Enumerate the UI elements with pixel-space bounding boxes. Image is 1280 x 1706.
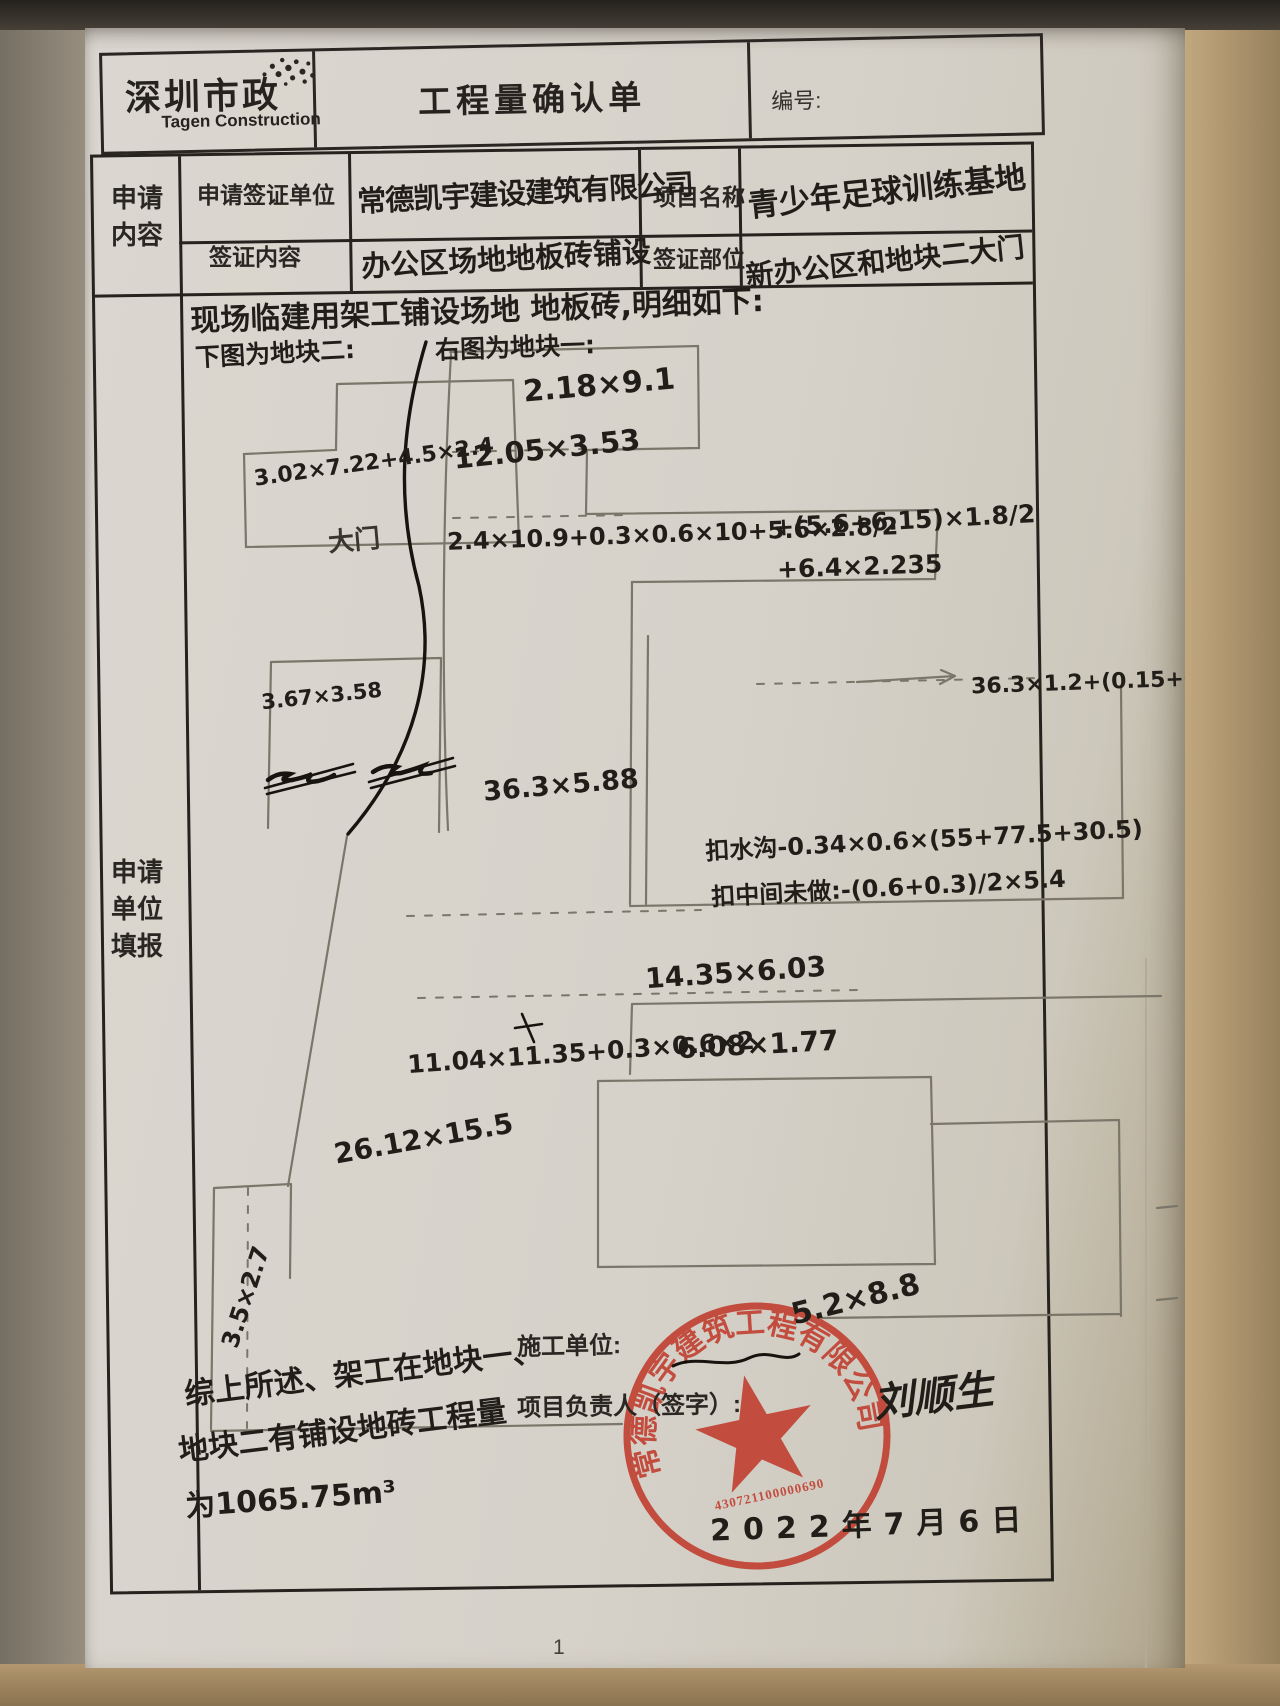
summary-line: 为1065.75m³ <box>184 1467 398 1526</box>
applicant-unit-value: 常德凯宇建设建筑有限公司 <box>356 161 694 221</box>
sketch-dim-label: 2.18×9.1 <box>522 361 677 409</box>
sketch-formula-label: +6.4×2.235 <box>777 549 943 584</box>
handwriting-layer: 常德凯宇建设建筑有限公司 青少年足球训练基地 办公区场地地板砖铺设 新办公区和地… <box>85 28 1185 1668</box>
sketch-dim-label: 36.3×5.88 <box>482 763 640 807</box>
paper-sheet: 深圳市政 Tagen Construction 工程量确认单 编号: 申请内容 … <box>85 28 1185 1668</box>
sketch-dim-label: 14.35×6.03 <box>644 950 827 996</box>
photo-background-right <box>1184 30 1280 1706</box>
date-value: 2022年7月6日 <box>709 1494 1034 1549</box>
caption-block2: 下图为地块二: <box>194 330 356 374</box>
sketch-formula-label: 36.3×1.2+(0.15+0.125)×36.3 <box>971 662 1185 700</box>
photo-background-left <box>0 30 86 1706</box>
deduction-gutter-label: 扣水沟-0.34×0.6×(55+77.5+30.5) <box>704 809 1143 867</box>
sketch-dim-label: 3.67×3.58 <box>260 678 383 715</box>
sketch-dim-label: 26.12×15.5 <box>332 1107 516 1171</box>
manager-signature: 刘顺生 <box>870 1357 996 1429</box>
deduction-middle-label: 扣中间未做:-(0.6+0.3)/2×5.4 <box>710 859 1066 913</box>
sketch-formula-label: +(5.6+6.15)×1.8/2 <box>772 499 1036 542</box>
visa-location-value: 新办公区和地块二大门 <box>744 225 1027 294</box>
sketch-dim-label: 6.08×1.77 <box>676 1024 839 1065</box>
gate-label: 大门 <box>326 518 381 559</box>
project-name-value: 青少年足球训练基地 <box>745 152 1027 226</box>
caption-block1: 右图为地块一: <box>434 325 595 367</box>
sketch-dim-label: 3.5×2.7 <box>216 1243 275 1352</box>
photo-background-bottom <box>0 1664 1280 1706</box>
sketch-dim-label: 3.02×7.22+4.5×2.4 <box>252 433 495 491</box>
sketch-dim-label: 5.2×8.8 <box>788 1267 924 1333</box>
page-number: 1 <box>553 1636 565 1660</box>
manager-sign-label: 项目负责人（签字）: <box>517 1384 742 1423</box>
visa-content-value: 办公区场地地板砖铺设 <box>360 228 652 285</box>
